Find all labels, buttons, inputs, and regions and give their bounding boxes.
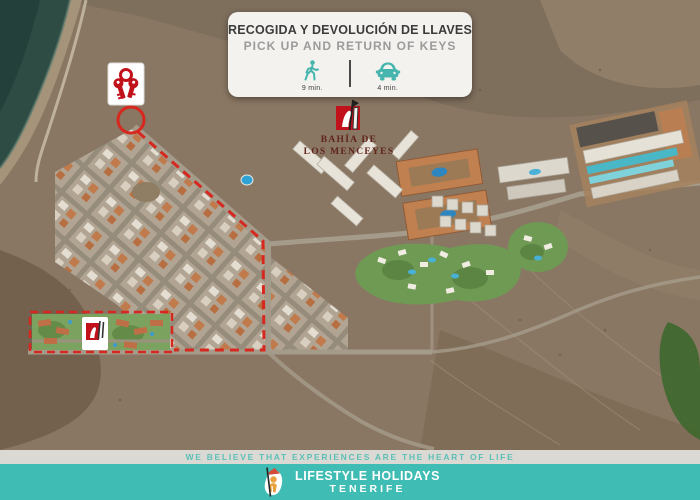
brand-location: TENERIFE bbox=[330, 483, 406, 495]
walking-icon bbox=[302, 60, 322, 82]
property-name-line2: LOS MENCEYES bbox=[304, 147, 395, 159]
brand-name: LIFESTYLE HOLIDAYS bbox=[295, 469, 440, 483]
walk-time: 9 min. bbox=[289, 60, 335, 92]
card-subtitle: PICK UP AND RETURN OF KEYS bbox=[244, 39, 457, 53]
property-logo: BAHÍA DE LOS MENCEYES bbox=[291, 99, 407, 158]
footer-tagline-bar: WE BELIEVE THAT EXPERIENCES ARE THE HEAR… bbox=[0, 450, 700, 464]
green-resort-large bbox=[355, 244, 521, 305]
brand-text: LIFESTYLE HOLIDAYS TENERIFE bbox=[295, 469, 440, 495]
tagline-text: WE BELIEVE THAT EXPERIENCES ARE THE HEAR… bbox=[186, 452, 515, 462]
property-name-line1: BAHÍA DE bbox=[321, 135, 378, 147]
property-logo-badge bbox=[82, 317, 108, 350]
page: BAHÍA DE LOS MENCEYES RECOGIDA Y DEVOLUC… bbox=[0, 0, 700, 500]
info-card: RECOGIDA Y DEVOLUCIÓN DE LLAVES PICK UP … bbox=[228, 12, 472, 97]
travel-times: 9 min. 4 min. bbox=[289, 60, 411, 92]
lifestyle-holidays-logo bbox=[260, 466, 286, 498]
walk-time-label: 9 min. bbox=[302, 85, 323, 92]
footer-brand-bar: LIFESTYLE HOLIDAYS TENERIFE bbox=[0, 464, 700, 500]
bahia-logo-icon bbox=[334, 99, 364, 135]
keys-icon-marker[interactable] bbox=[108, 63, 144, 105]
green-resort-small bbox=[508, 222, 568, 272]
drive-time: 4 min. bbox=[365, 60, 411, 92]
town-plaza bbox=[132, 182, 160, 202]
pool bbox=[241, 175, 253, 185]
drive-time-label: 4 min. bbox=[377, 85, 398, 92]
car-icon bbox=[375, 60, 401, 82]
divider bbox=[349, 60, 351, 87]
card-title: RECOGIDA Y DEVOLUCIÓN DE LLAVES bbox=[228, 23, 472, 37]
